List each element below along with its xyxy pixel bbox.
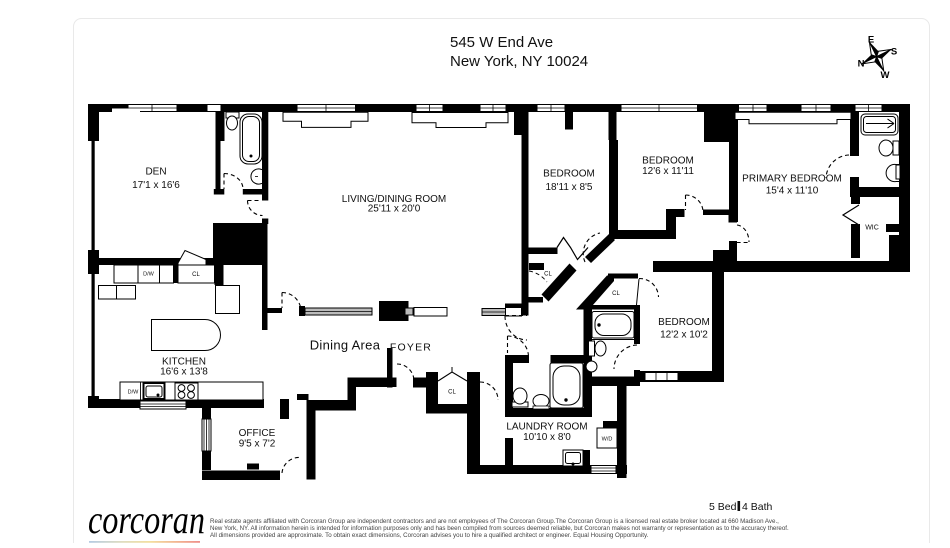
svg-text:W/D: W/D xyxy=(602,437,613,443)
svg-text:DEN: DEN xyxy=(145,167,166,178)
svg-text:17'1 x 16'6: 17'1 x 16'6 xyxy=(132,180,180,191)
svg-text:WIC: WIC xyxy=(865,225,879,232)
svg-text:corcoran: corcoran xyxy=(88,497,205,542)
svg-text:BEDROOM: BEDROOM xyxy=(642,156,694,167)
svg-text:Dining Area: Dining Area xyxy=(310,338,381,353)
svg-text:CL: CL xyxy=(612,291,620,297)
svg-text:5 Bed: 5 Bed xyxy=(709,501,737,513)
svg-text:4 Bath: 4 Bath xyxy=(742,501,773,513)
svg-text:CL: CL xyxy=(192,272,200,278)
svg-text:BEDROOM: BEDROOM xyxy=(658,317,710,328)
svg-text:LAUNDRY ROOM: LAUNDRY ROOM xyxy=(506,422,587,433)
svg-text:OFFICE: OFFICE xyxy=(239,428,276,439)
svg-text:12'6 x 11'11: 12'6 x 11'11 xyxy=(642,166,694,177)
svg-text:S: S xyxy=(891,47,897,58)
svg-text:18'11 x 8'5: 18'11 x 8'5 xyxy=(545,182,592,193)
svg-text:D/W: D/W xyxy=(143,272,155,278)
svg-text:New York, NY. All information: New York, NY. All information herein is … xyxy=(210,525,789,532)
svg-text:PRIMARY BEDROOM: PRIMARY BEDROOM xyxy=(742,174,842,185)
svg-text:W: W xyxy=(881,70,890,81)
svg-text:16'6 x 13'8: 16'6 x 13'8 xyxy=(160,367,208,378)
svg-text:D/W: D/W xyxy=(128,390,140,396)
svg-text:25'11 x 20'0: 25'11 x 20'0 xyxy=(368,204,421,215)
svg-text:CL: CL xyxy=(448,390,456,396)
svg-text:12'2 x 10'2: 12'2 x 10'2 xyxy=(660,330,708,341)
svg-text:CL: CL xyxy=(544,272,552,278)
svg-text:N: N xyxy=(858,59,865,70)
svg-text:BEDROOM: BEDROOM xyxy=(543,169,595,180)
svg-text:10'10 x 8'0: 10'10 x 8'0 xyxy=(523,432,571,443)
svg-text:All dimensions provided are ap: All dimensions provided are approximate.… xyxy=(210,532,649,539)
svg-text:15'4 x 11'10: 15'4 x 11'10 xyxy=(766,186,819,197)
svg-text:545 W End Ave: 545 W End Ave xyxy=(450,34,553,51)
svg-text:Real estate agents affiliated: Real estate agents affiliated with Corco… xyxy=(210,518,779,525)
svg-text:New York, NY 10024: New York, NY 10024 xyxy=(450,53,588,70)
svg-text:9'5 x 7'2: 9'5 x 7'2 xyxy=(239,439,276,450)
svg-text:E: E xyxy=(868,35,874,46)
svg-text:FOYER: FOYER xyxy=(390,342,432,354)
